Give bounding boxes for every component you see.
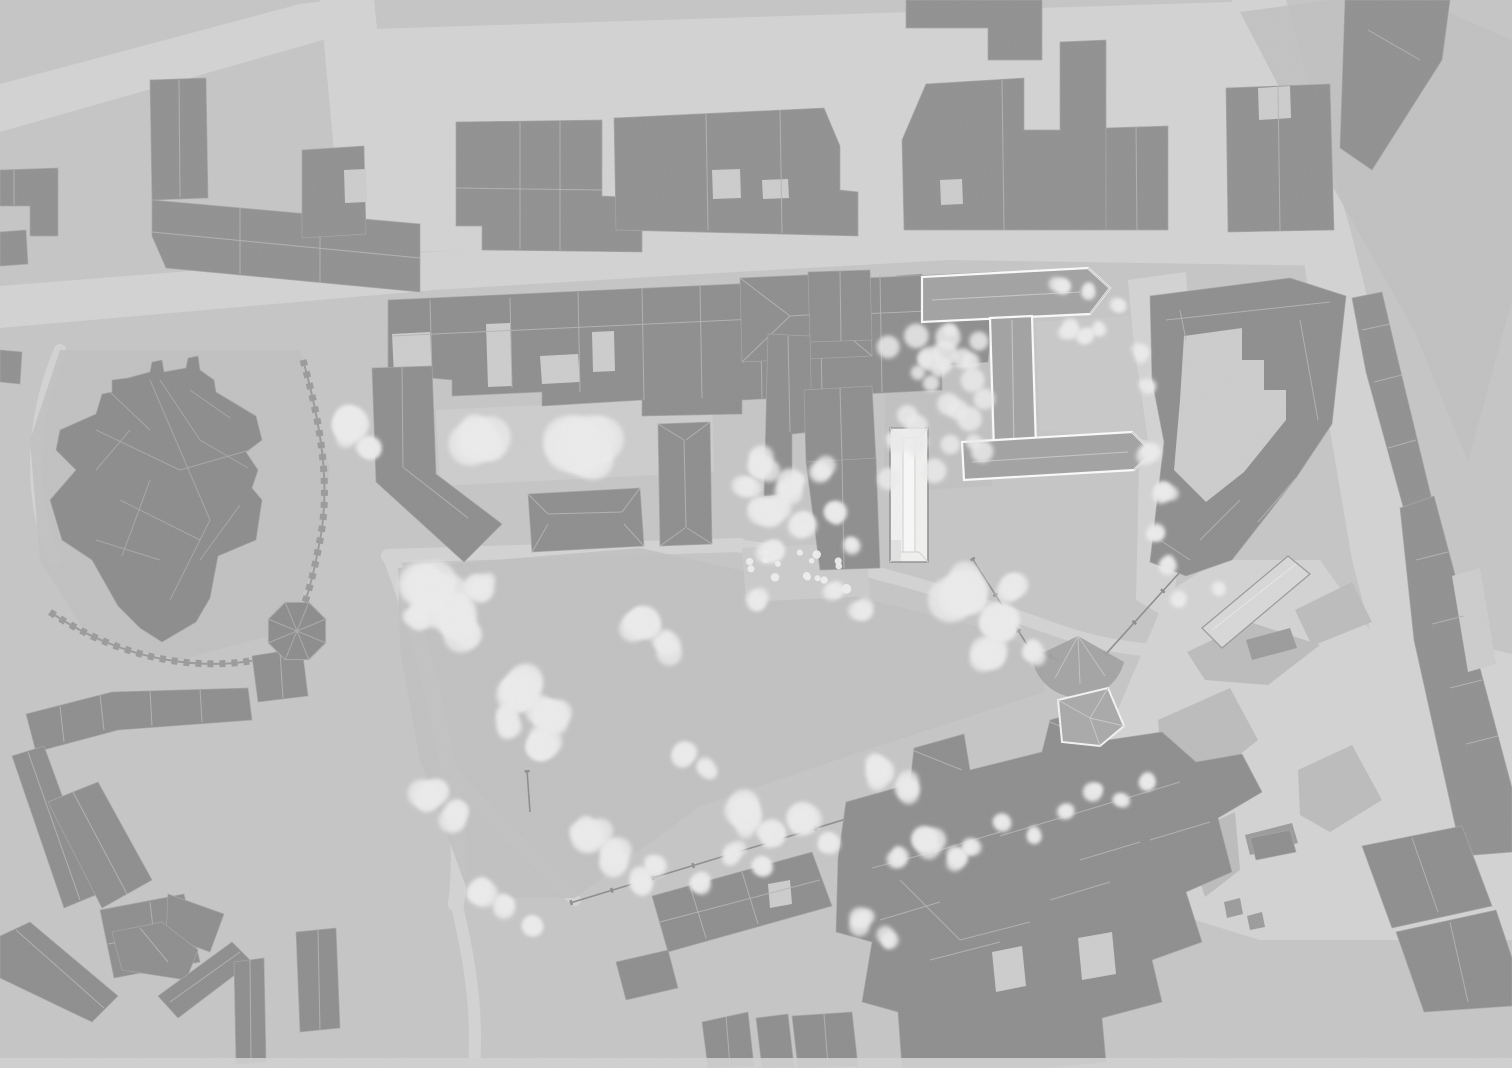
tree-canopy bbox=[752, 597, 765, 610]
tree-canopy bbox=[877, 336, 900, 359]
tree-canopy bbox=[971, 440, 993, 462]
tree-canopy bbox=[1049, 277, 1063, 291]
courtyard-cutout bbox=[768, 880, 792, 908]
tree-canopy bbox=[445, 810, 466, 831]
tree-canopy bbox=[922, 459, 946, 483]
tree-canopy bbox=[545, 422, 595, 472]
tree-canopy bbox=[932, 340, 958, 366]
orchard-tree-dot bbox=[804, 574, 811, 581]
site-plan-svg bbox=[0, 0, 1512, 1068]
tree-canopy bbox=[528, 731, 558, 761]
tree-canopy bbox=[961, 368, 985, 392]
orchard-tree-dot bbox=[809, 558, 815, 564]
tree-canopy bbox=[732, 802, 760, 830]
orchard-tree-dot bbox=[771, 573, 780, 582]
site-plan bbox=[0, 0, 1512, 1068]
tree-canopy bbox=[943, 323, 956, 336]
courtyard-cutout bbox=[344, 169, 367, 203]
tree-canopy bbox=[913, 829, 934, 850]
context-building bbox=[0, 350, 22, 384]
tree-canopy bbox=[501, 896, 514, 909]
tree-canopy bbox=[987, 619, 1007, 639]
tree-canopy bbox=[1086, 328, 1095, 337]
tree-canopy bbox=[898, 770, 919, 791]
tree-canopy bbox=[825, 503, 842, 520]
tree-canopy bbox=[1113, 794, 1124, 805]
orchard-tree-dot bbox=[746, 558, 753, 565]
tree-canopy bbox=[941, 435, 961, 455]
tree-canopy bbox=[631, 608, 659, 636]
tree-canopy bbox=[962, 353, 980, 371]
tree-canopy bbox=[820, 834, 840, 854]
tree-canopy bbox=[853, 916, 863, 926]
orchard-tree-dot bbox=[812, 550, 821, 559]
tree-canopy bbox=[886, 851, 903, 868]
tree-canopy bbox=[978, 641, 1005, 668]
tree-canopy bbox=[1058, 326, 1071, 339]
tree-canopy bbox=[533, 698, 554, 719]
tree-canopy bbox=[1024, 645, 1039, 660]
tree-cluster bbox=[843, 537, 860, 554]
orchard-tree-dot bbox=[842, 584, 852, 594]
tree-canopy bbox=[355, 437, 373, 455]
courtyard-cutout bbox=[592, 331, 615, 372]
tree-canopy bbox=[845, 537, 855, 547]
orchard-tree-dot bbox=[762, 556, 769, 563]
orchard-tree-dot bbox=[814, 575, 820, 581]
tree-canopy bbox=[659, 630, 673, 644]
orchard-tree-dot bbox=[797, 550, 803, 556]
courtyard-cutout bbox=[712, 169, 741, 199]
orchard-tree-dot bbox=[747, 565, 754, 572]
tree-canopy bbox=[1147, 384, 1154, 391]
tree-canopy bbox=[1159, 558, 1174, 573]
tree-canopy bbox=[947, 589, 974, 616]
courtyard-cutout bbox=[762, 179, 789, 199]
tree-canopy bbox=[634, 879, 651, 896]
tree-canopy bbox=[911, 365, 926, 380]
tree-canopy bbox=[502, 678, 526, 702]
tree-canopy bbox=[1094, 784, 1103, 793]
tree-canopy bbox=[993, 817, 1003, 827]
tree-canopy bbox=[887, 430, 910, 453]
tree-canopy bbox=[878, 468, 901, 491]
tree-canopy bbox=[953, 851, 966, 864]
tree-canopy bbox=[422, 779, 448, 805]
tree-canopy bbox=[749, 455, 771, 477]
tree-canopy bbox=[575, 826, 591, 842]
tree-canopy bbox=[1134, 351, 1147, 364]
courtyard-cutout bbox=[940, 179, 963, 205]
bottom-edge-strip bbox=[0, 1058, 1512, 1068]
courtyard-cutout bbox=[486, 323, 512, 387]
tree-canopy bbox=[791, 802, 815, 826]
tree-canopy bbox=[1083, 287, 1096, 300]
tree-canopy bbox=[693, 877, 710, 894]
tree-canopy bbox=[468, 888, 482, 902]
orchard-tree-dot bbox=[763, 550, 769, 556]
tree-canopy bbox=[1150, 526, 1164, 540]
orchard-tree-dot bbox=[775, 561, 781, 567]
tree-canopy bbox=[1094, 324, 1104, 334]
tree-canopy bbox=[675, 744, 693, 762]
tree-canopy bbox=[482, 573, 495, 586]
tree-canopy bbox=[336, 428, 356, 448]
courtyard-cutout bbox=[1078, 932, 1116, 980]
tree-canopy bbox=[603, 843, 621, 861]
orchard-tree-dot bbox=[820, 576, 827, 583]
tree-canopy bbox=[764, 540, 783, 559]
tree-canopy bbox=[1152, 487, 1169, 504]
tree-canopy bbox=[740, 479, 755, 494]
tree-canopy bbox=[1115, 301, 1124, 310]
tree-canopy bbox=[793, 473, 805, 485]
tree-canopy bbox=[856, 598, 873, 615]
tree-canopy bbox=[1140, 775, 1154, 789]
tree-canopy bbox=[876, 926, 894, 944]
tree-canopy bbox=[752, 857, 770, 875]
tree-canopy bbox=[731, 841, 746, 856]
tree-canopy bbox=[963, 845, 972, 854]
tree-canopy bbox=[402, 609, 418, 625]
tree-canopy bbox=[792, 511, 814, 533]
tree-canopy bbox=[897, 405, 918, 426]
tree-canopy bbox=[996, 582, 1017, 603]
courtyard-cutout bbox=[992, 946, 1026, 992]
context-building bbox=[0, 230, 28, 266]
courtyard-cutout bbox=[540, 354, 580, 384]
tree-canopy bbox=[644, 856, 657, 869]
tree-canopy bbox=[865, 754, 882, 771]
tree-canopy bbox=[472, 425, 495, 448]
tree-canopy bbox=[1028, 830, 1039, 841]
tree-canopy bbox=[923, 375, 939, 391]
tree-canopy bbox=[969, 331, 988, 350]
tree-canopy bbox=[822, 584, 839, 601]
tree-canopy bbox=[1138, 380, 1146, 388]
tree-canopy bbox=[1061, 808, 1067, 814]
tree-canopy bbox=[815, 465, 826, 476]
tree-canopy bbox=[904, 324, 929, 349]
context-building-roofed bbox=[528, 488, 644, 552]
tree-canopy bbox=[696, 761, 709, 774]
tree-canopy bbox=[937, 393, 959, 415]
tree-canopy bbox=[762, 823, 785, 846]
tree-canopy bbox=[1215, 587, 1224, 596]
tree-canopy bbox=[504, 719, 521, 736]
tree-canopy bbox=[1171, 595, 1183, 607]
tree-canopy bbox=[1146, 447, 1156, 457]
tree-canopy bbox=[452, 599, 472, 619]
tree-canopy bbox=[757, 500, 782, 525]
tree-canopy bbox=[524, 916, 540, 932]
new-building-notch bbox=[891, 540, 901, 561]
orchard-tree-dot bbox=[835, 557, 842, 564]
courtyard-cutout bbox=[1258, 86, 1291, 120]
